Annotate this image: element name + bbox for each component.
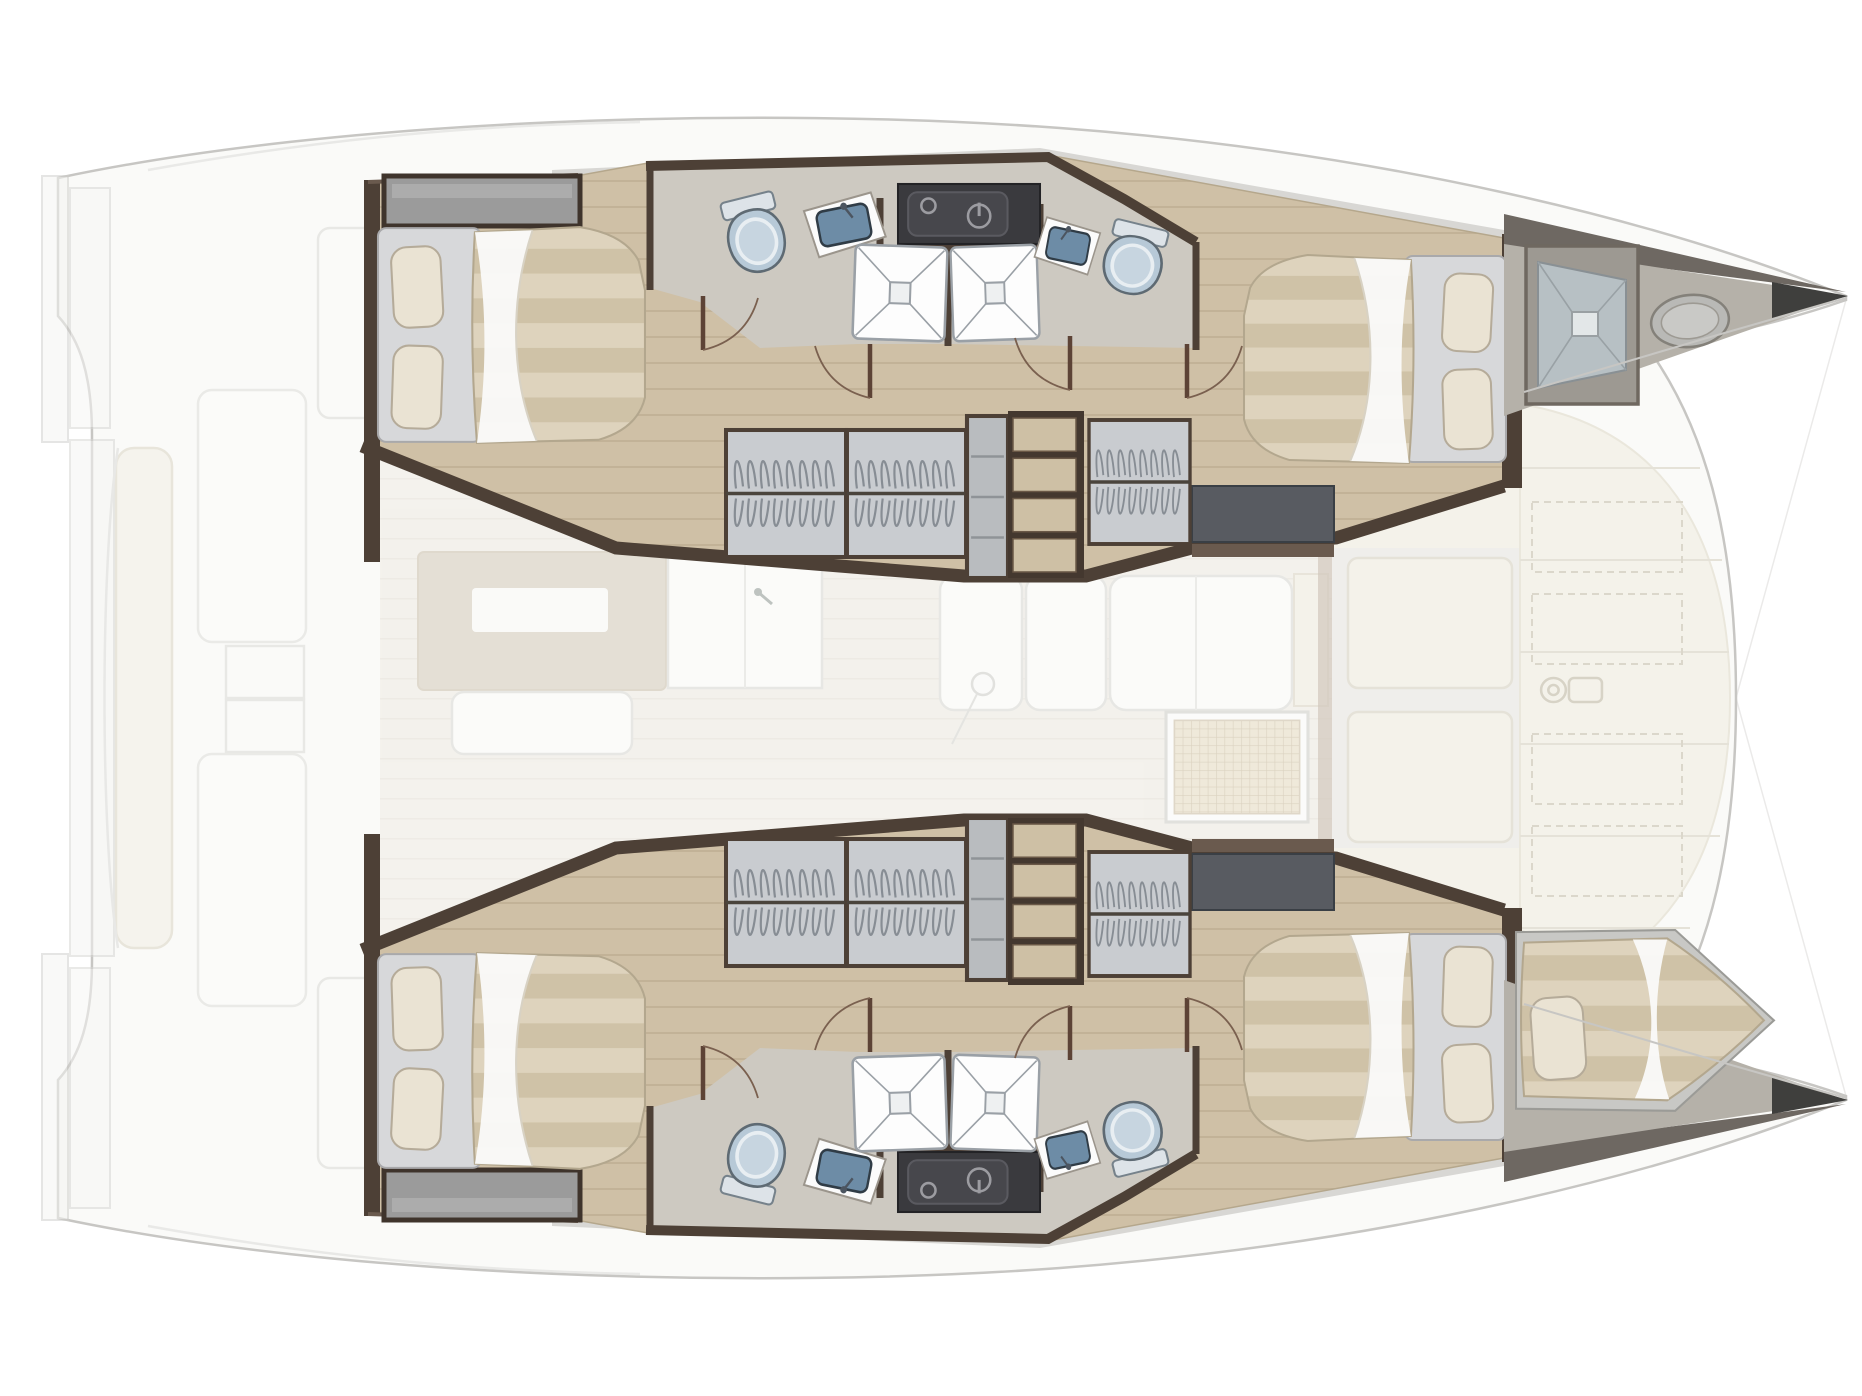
sideboard bbox=[384, 1170, 580, 1220]
table-foot bbox=[972, 673, 994, 695]
wardrobe bbox=[726, 839, 846, 966]
wardrobe bbox=[847, 430, 966, 557]
bed bbox=[378, 953, 645, 1169]
wardrobe bbox=[1089, 852, 1190, 976]
cockpit-table-starboard bbox=[198, 754, 306, 1006]
darkunit bbox=[898, 1152, 1040, 1212]
boat-floor-plan: Catamaran yacht interior layout – top vi… bbox=[0, 0, 1862, 1396]
aft-bench bbox=[116, 448, 172, 948]
floor-plan-canvas bbox=[0, 0, 1862, 1396]
saloon-fixtures bbox=[1166, 712, 1308, 822]
saloon-front-wall bbox=[1318, 548, 1332, 848]
cockpit-table-port bbox=[198, 390, 306, 642]
sideboard bbox=[384, 176, 580, 226]
bed bbox=[378, 227, 645, 443]
bed bbox=[1244, 255, 1506, 463]
saloon-sofa bbox=[1110, 576, 1292, 710]
shower bbox=[950, 1055, 1039, 1152]
transom-steps-port bbox=[42, 176, 68, 442]
stairs bbox=[1008, 818, 1084, 985]
cabinet bbox=[967, 818, 1008, 980]
starboard-hull bbox=[362, 818, 1522, 1248]
bed bbox=[1244, 933, 1506, 1141]
cabinet bbox=[967, 416, 1008, 578]
grate bbox=[1166, 712, 1308, 822]
shower bbox=[950, 245, 1039, 342]
wardrobe bbox=[726, 430, 846, 557]
shower bbox=[852, 244, 947, 341]
wardrobe bbox=[847, 839, 966, 966]
saloon-bench bbox=[452, 692, 632, 754]
wardrobe bbox=[1089, 420, 1190, 544]
darkunit bbox=[898, 184, 1040, 244]
shower bbox=[852, 1054, 947, 1151]
stairs bbox=[1008, 411, 1084, 578]
port-hull bbox=[362, 148, 1522, 578]
hatch bbox=[1526, 246, 1638, 404]
transom-steps-starboard bbox=[42, 954, 68, 1220]
